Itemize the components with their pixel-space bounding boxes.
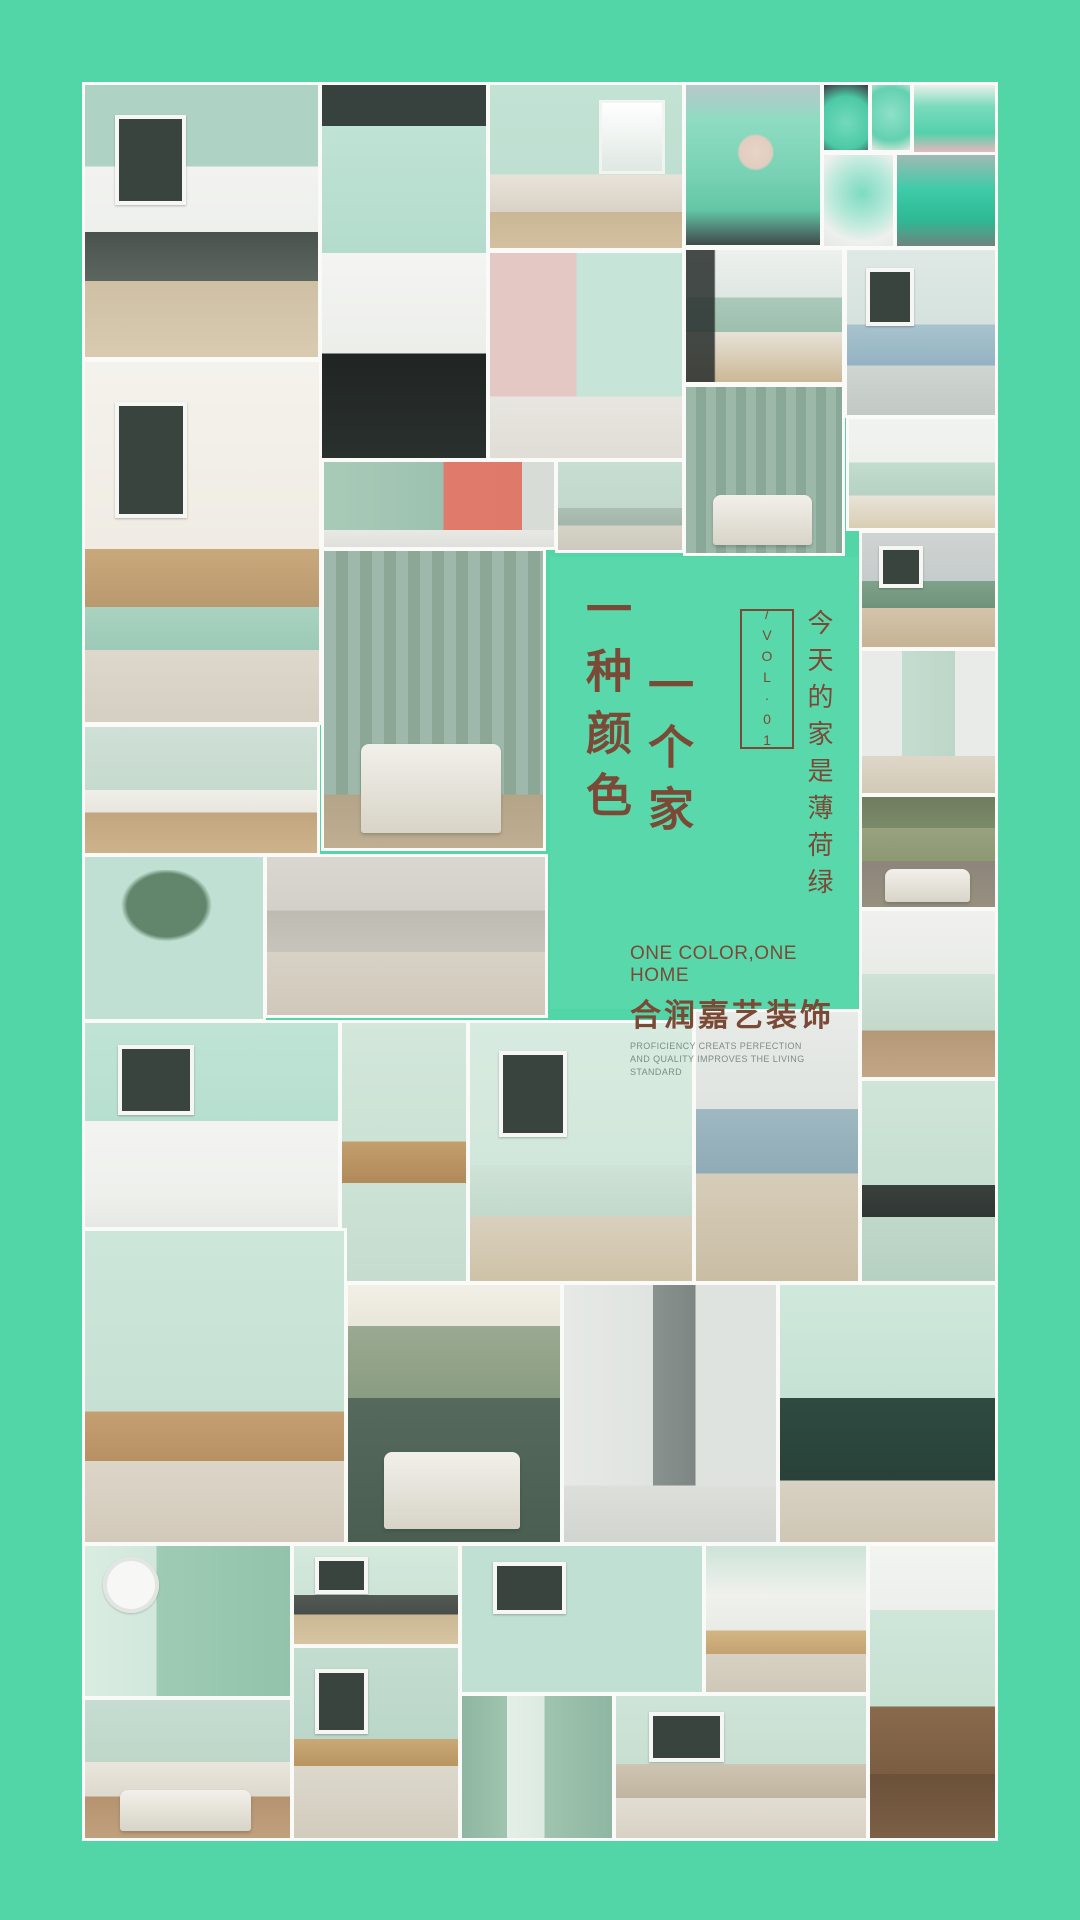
bedroom-two-windows-photo (490, 85, 682, 248)
loft-kitchen-photo (267, 857, 545, 1015)
mint-interior-poster: 一种颜色 一个家 /VOL·01 今天的家是薄荷绿 ONE COLOR,ONE … (0, 0, 1080, 1920)
darkgreen-kitchen-shelf-photo (780, 1285, 995, 1542)
moodboard-dining-photo (85, 362, 319, 722)
pendant-doorway-room-photo (862, 911, 995, 1077)
veranda-hammock-photo (870, 1546, 995, 1838)
tree-panel-wall-photo (85, 857, 263, 1019)
shower-coral-vanity-photo (324, 462, 554, 547)
nursery-pink-mint-photo (490, 253, 682, 458)
tagline-en: ONE COLOR,ONE HOME (630, 943, 858, 987)
pineapple-dining-photo (462, 1546, 702, 1692)
olive-bed-room-photo (862, 797, 995, 907)
bed-triangle-art-photo (294, 1648, 458, 1838)
brand-block: ONE COLOR,ONE HOME 合润嘉艺装饰 PROFICIENCY CR… (630, 943, 858, 1079)
wc-black-pipes-photo (85, 1023, 338, 1227)
kitchen-black-hood-photo (686, 250, 842, 382)
doorway-room-photo (862, 651, 995, 793)
beige-sofa-room-photo (616, 1696, 866, 1838)
teal-cupcakes-photo (872, 85, 910, 150)
console-room-photo (706, 1546, 866, 1692)
headline-one-home: 一个家 (634, 661, 700, 847)
bed-niche-green-photo (348, 1285, 560, 1542)
volume-label: /VOL·01 (759, 606, 775, 753)
headline-one-color: 一种颜色 (572, 585, 638, 833)
green-sofa-lounge-photo (862, 533, 995, 647)
reading-corner-photo (85, 727, 317, 853)
white-mint-kitchen-photo (849, 419, 995, 528)
sp-poster-room-photo (847, 250, 995, 415)
gray-chair-doors-photo (564, 1285, 776, 1542)
sofa-posters-room-photo (294, 1546, 458, 1644)
green-hallway-mirrors-photo (462, 1696, 612, 1838)
dining-cane-chairs-photo (85, 1231, 344, 1542)
teal-truck-bike-photo (897, 155, 995, 246)
volume-badge: /VOL·01 (740, 609, 794, 749)
slogan-vertical: 今天的家是薄荷绿 (800, 609, 837, 905)
clock-wreath-wall-photo (85, 1546, 290, 1696)
bathroom-black-white-photo (322, 85, 486, 458)
teal-jar-photo (824, 85, 868, 150)
photo-collage (0, 0, 1080, 1920)
sub-tagline-line2: AND QUALITY IMPROVES THE LIVING STANDARD (630, 1053, 858, 1079)
sub-tagline-line1: PROFICIENCY CREATS PERFECTION (630, 1040, 858, 1053)
slat-wall-bedroom-photo (324, 551, 543, 848)
ribbed-wall-bedroom-photo (686, 387, 842, 553)
sub-tagline-en: PROFICIENCY CREATS PERFECTION AND QUALIT… (630, 1040, 858, 1079)
teal-cake-photo (914, 85, 995, 152)
black-box-shelves-photo (862, 1081, 995, 1281)
brand-name: 合润嘉艺装饰 (630, 990, 858, 1035)
teal-phone-photo (824, 155, 893, 246)
stairs-plant-photo (342, 1023, 466, 1281)
bedroom-wood-bed-photo (85, 1700, 290, 1838)
living-room-gallery-photo (85, 85, 318, 357)
center-text-panel: 一种颜色 一个家 /VOL·01 今天的家是薄荷绿 ONE COLOR,ONE … (550, 557, 858, 1009)
cabinet-rug-photo (558, 462, 682, 550)
girl-green-hair-photo (686, 85, 820, 245)
